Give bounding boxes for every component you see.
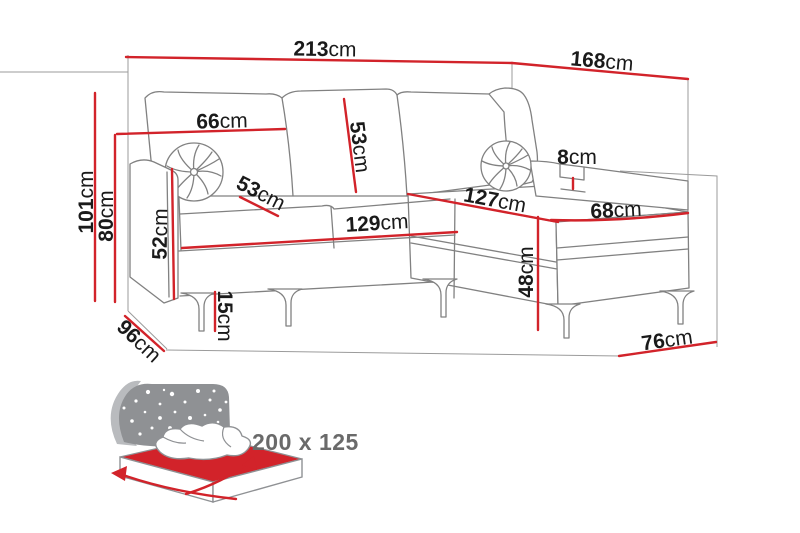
sofa-leg bbox=[546, 304, 580, 338]
dimension-label-side-depth: 96cm bbox=[112, 315, 165, 367]
dimension-label-back-height: 80cm bbox=[95, 190, 118, 241]
dimension-label-chaise-back-depth: 168cm bbox=[570, 47, 635, 75]
dimension-label-chaise-width: 68cm bbox=[590, 197, 642, 223]
bed-size-label: 200 x 125 bbox=[252, 429, 359, 455]
arrow-head-left bbox=[111, 466, 127, 481]
sofa-leg bbox=[660, 291, 694, 324]
furniture-dimension-diagram: 213cm 168cm 101cm 80cm 66cm 53cm 53cm 52… bbox=[0, 0, 800, 533]
sofa-bed-icon: 200 x 125 bbox=[111, 381, 359, 502]
dimension-label-seat-height: 48cm bbox=[515, 246, 538, 297]
dimension-label-chaise-base-width: 76cm bbox=[640, 325, 694, 355]
round-pillow-right bbox=[481, 141, 531, 191]
dimension-label-seat-width: 129cm bbox=[345, 210, 409, 237]
dimension-label-leg-height: 15cm bbox=[214, 290, 237, 341]
sofa-leg bbox=[268, 289, 302, 326]
diagram-canvas: 213cm 168cm 101cm 80cm 66cm 53cm 53cm 52… bbox=[0, 0, 800, 533]
dimension-label-armrest-height: 52cm bbox=[148, 208, 172, 260]
dimension-label-back-width: 213cm bbox=[293, 37, 356, 61]
sofa-leg bbox=[181, 293, 215, 331]
dimension-label-armrest-lip: 8cm bbox=[557, 146, 597, 169]
dimension-label-back-cushion-width: 66cm bbox=[196, 109, 248, 133]
